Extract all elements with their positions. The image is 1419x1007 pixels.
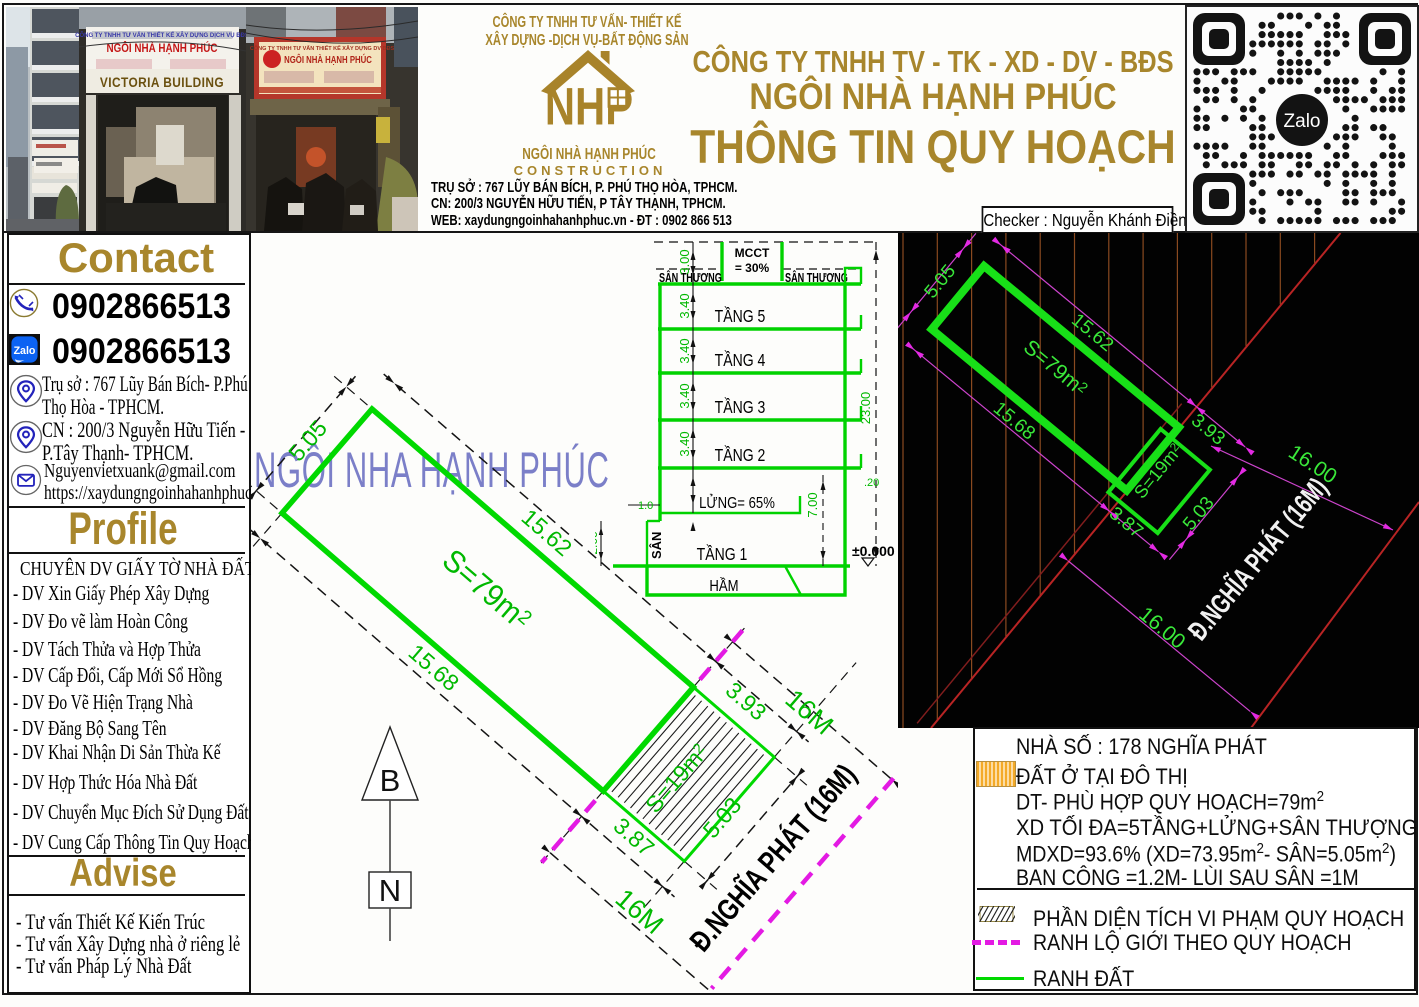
- svg-text:Zalo: Zalo: [1284, 111, 1321, 132]
- svg-text:TẦNG 5: TẦNG 5: [715, 305, 766, 326]
- svg-text:TẦNG 2: TẦNG 2: [715, 444, 766, 465]
- svg-text:HẦM: HẦM: [709, 577, 738, 596]
- svg-text:LỬNG= 65%: LỬNG= 65%: [699, 493, 775, 513]
- svg-text:7.00: 7.00: [805, 492, 820, 517]
- svg-text:TẦNG 1: TẦNG 1: [697, 543, 748, 564]
- svg-text:Đ.NGHĨA PHÁT (16M): Đ.NGHĨA PHÁT (16M): [682, 757, 862, 958]
- svg-text:3.00: 3.00: [677, 249, 692, 274]
- svg-text:NGÔI NHÀ HẠNH PHÚC: NGÔI NHÀ HẠNH PHÚC: [284, 53, 372, 65]
- svg-text:3.87: 3.87: [609, 812, 660, 861]
- svg-text:S=79m2: S=79m2: [436, 543, 537, 637]
- svg-text:B: B: [380, 763, 401, 798]
- svg-text:1.0: 1.0: [638, 500, 653, 512]
- svg-text:3.40: 3.40: [677, 293, 692, 318]
- svg-text:SÂN: SÂN: [649, 532, 664, 559]
- svg-text:±0.000: ±0.000: [852, 543, 895, 559]
- svg-text:23.00: 23.00: [858, 392, 873, 425]
- svg-text:3.40: 3.40: [677, 383, 692, 408]
- svg-text:3.40: 3.40: [677, 338, 692, 363]
- svg-text:Zalo: Zalo: [14, 345, 36, 357]
- svg-text:.20: .20: [864, 477, 879, 489]
- svg-text:MCCT: MCCT: [735, 246, 770, 260]
- svg-text:15.62: 15.62: [517, 504, 578, 561]
- svg-text:16M: 16M: [610, 883, 669, 940]
- svg-text:3.40: 3.40: [677, 431, 692, 456]
- svg-text:N: N: [379, 873, 401, 908]
- svg-text:TẦNG 3: TẦNG 3: [715, 396, 766, 417]
- svg-text:TẦNG 4: TẦNG 4: [715, 349, 766, 370]
- svg-text:S=19m2: S=19m2: [640, 739, 713, 818]
- svg-text:CÔNG TY TNHH TƯ VẤN THIẾT KẾ X: CÔNG TY TNHH TƯ VẤN THIẾT KẾ XÂY DỰNG DV…: [250, 44, 395, 52]
- svg-text:2.00: 2.00: [595, 531, 600, 555]
- svg-text:= 30%: = 30%: [735, 261, 770, 275]
